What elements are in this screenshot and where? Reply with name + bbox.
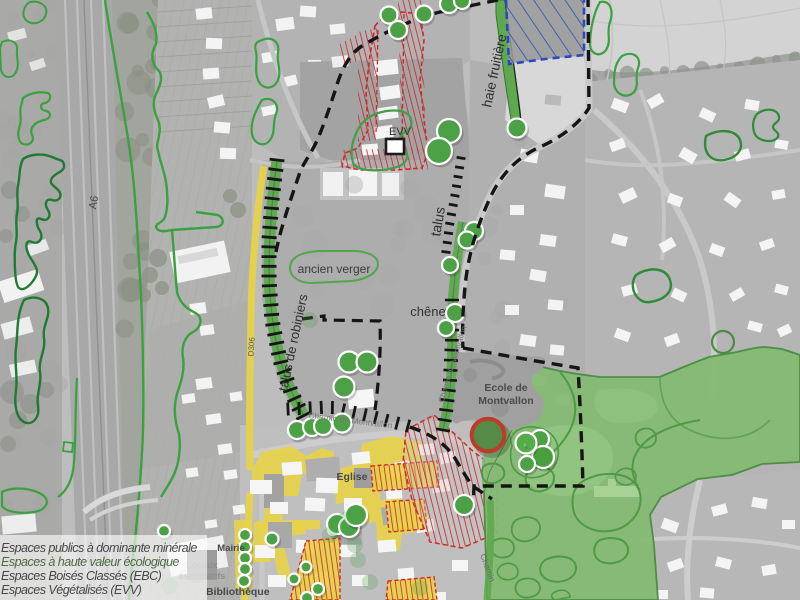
svg-text:Espaces publics à dominante mi: Espaces publics à dominante minérale [1,541,197,555]
svg-text:Espaces à haute valeur écologi: Espaces à haute valeur écologique [1,555,179,569]
svg-text:Ecole de: Ecole de [484,382,527,394]
svg-text:Mairie: Mairie [217,543,244,554]
svg-text:D306: D306 [246,336,256,356]
svg-text:Espaces Boisés Classés (EBC): Espaces Boisés Classés (EBC) [1,569,162,583]
svg-text:Montvallon: Montvallon [478,395,533,407]
svg-text:ancien verger: ancien verger [298,262,371,276]
svg-text:Bibliothèque: Bibliothèque [206,586,270,598]
svg-text:Espaces Végétalisés (EVV): Espaces Végétalisés (EVV) [1,583,142,597]
svg-text:A6: A6 [87,195,101,210]
svg-text:chêne: chêne [410,304,445,319]
svg-text:EVV: EVV [389,126,412,138]
svg-text:Eglise: Eglise [337,471,368,483]
